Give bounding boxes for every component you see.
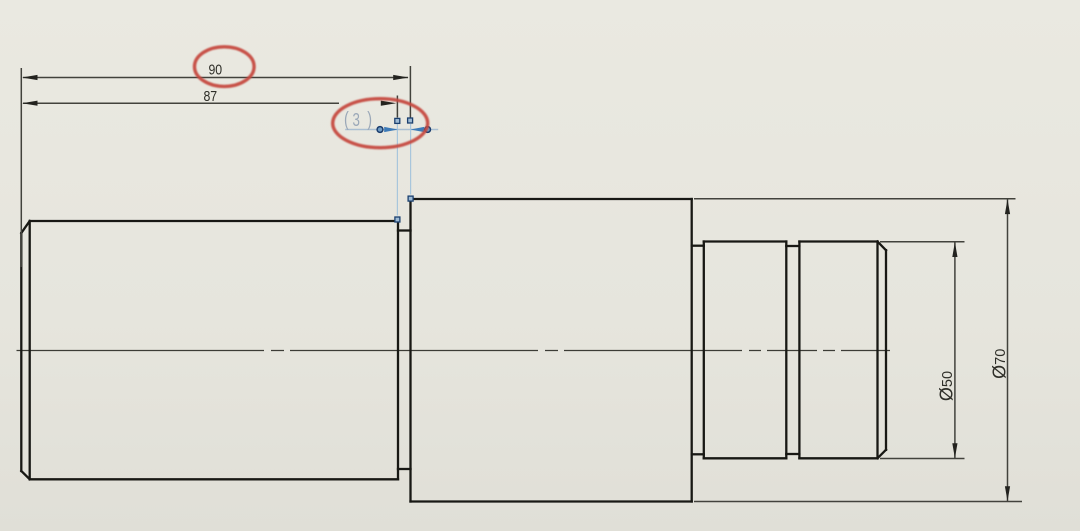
svg-text:): ) (367, 108, 372, 131)
svg-text:3: 3 (352, 110, 359, 131)
svg-text:Ø50: Ø50 (937, 371, 957, 401)
svg-text:Ø70: Ø70 (990, 349, 1010, 379)
svg-text:87: 87 (203, 88, 217, 104)
svg-text:(: ( (344, 108, 349, 131)
svg-text:90: 90 (208, 61, 222, 77)
